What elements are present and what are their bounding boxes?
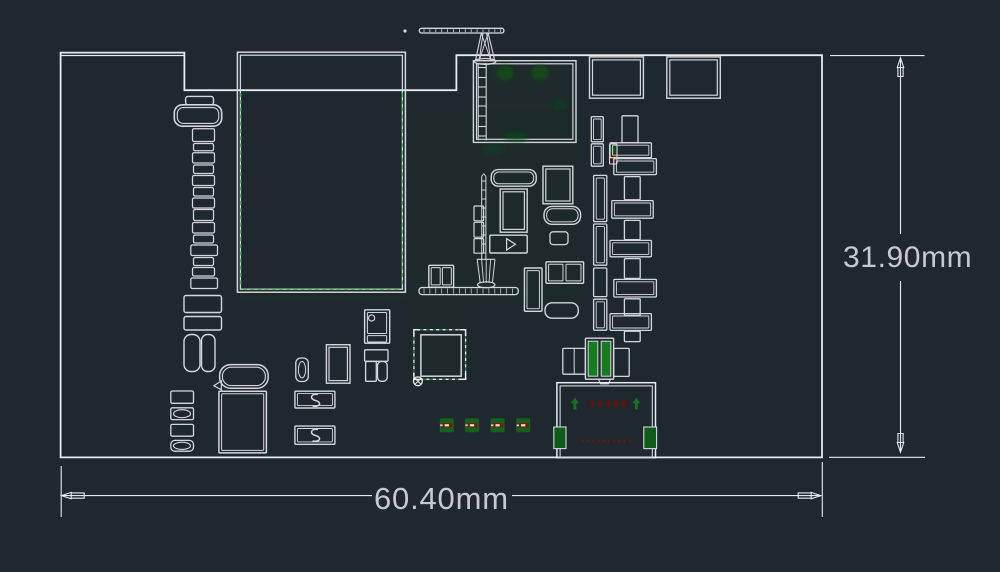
- svg-text:60.40mm: 60.40mm: [374, 481, 509, 516]
- svg-text:31.90mm: 31.90mm: [843, 241, 972, 274]
